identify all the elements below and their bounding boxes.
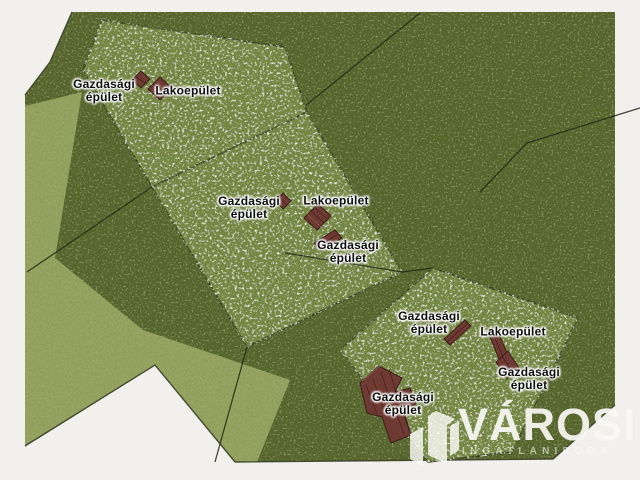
label-farm-building-5: Gazdaságiépület — [498, 366, 560, 392]
label-farm-building-4: Gazdaságiépület — [398, 310, 460, 336]
label-residential-building-2: Lakoepület — [303, 195, 368, 208]
label-farm-building-2: Gazdaságiépület — [218, 195, 280, 221]
watermark-subtitle: INGATLANIRODA — [462, 446, 613, 457]
watermark: VÁROSI INGATLANIRODA — [398, 402, 640, 474]
watermark-brand: VÁROSI — [458, 402, 637, 447]
label-farm-building-3: Gazdaságiépület — [317, 239, 379, 265]
label-farm-building-1: Gazdaságiépület — [73, 78, 135, 104]
label-residential-building-1: Lakoepület — [155, 85, 220, 98]
label-residential-building-3: Lakoepület — [480, 326, 545, 339]
aerial-map-canvas: Gazdaságiépület Lakoepület Gazdaságiépül… — [0, 0, 640, 480]
